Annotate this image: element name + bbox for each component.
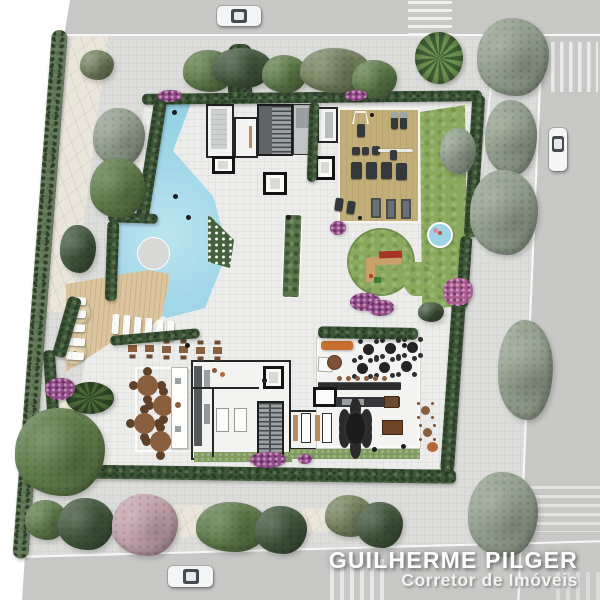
small-rooms [234, 117, 258, 158]
exercise-machine [381, 162, 392, 179]
exercise-machine [351, 162, 362, 179]
realtor-title: Corretor de Imóveis [329, 572, 578, 590]
wc-stall [322, 413, 332, 443]
plaza-light [185, 343, 190, 348]
car-roof [554, 139, 562, 149]
site-plan-rendering: GUILHERME PILGER Corretor de Imóveis [0, 0, 600, 600]
plaza-light [286, 215, 291, 220]
playground-toy [369, 274, 373, 278]
realtor-name: GUILHERME PILGER [329, 549, 578, 572]
watermark: GUILHERME PILGER Corretor de Imóveis [329, 549, 578, 590]
tree [58, 498, 114, 550]
central-planter [282, 214, 303, 299]
bar-table [379, 362, 390, 373]
plaza-light [402, 343, 407, 348]
tree [90, 158, 145, 218]
bar-stools [337, 376, 342, 381]
terrace-table [423, 428, 432, 437]
elevator [212, 156, 235, 174]
elevator [263, 366, 284, 389]
restaurant-table [137, 375, 158, 396]
kitchen-appliance [204, 370, 210, 388]
exercise-machine [396, 163, 407, 180]
kiddie-pool [427, 222, 453, 248]
gym-lounger [371, 198, 381, 218]
gym-lounger [401, 199, 411, 219]
tree [357, 502, 403, 548]
door [249, 126, 252, 148]
playground-block [374, 277, 381, 283]
plaza-light [186, 215, 191, 220]
exercise-machine [366, 162, 377, 179]
lounge-sofa [321, 341, 353, 350]
car-roof [186, 572, 196, 581]
sideboard [382, 420, 403, 435]
wc-stall [301, 413, 311, 443]
car [217, 6, 261, 26]
kitchen-appliance [356, 399, 364, 405]
car [168, 566, 213, 587]
buffet-item [175, 402, 181, 408]
kitchen-appliance [342, 399, 352, 405]
tree [470, 170, 538, 255]
flowering-tree [112, 494, 178, 556]
shrub-orange [427, 442, 438, 452]
treadmill [391, 112, 398, 129]
wc-stall [315, 415, 320, 441]
poolside-table [145, 345, 154, 352]
wc-stall [293, 415, 298, 441]
lobby-table [211, 109, 227, 149]
servery-item [220, 372, 225, 377]
plaza-light [372, 447, 377, 452]
stair-rail [269, 403, 271, 456]
car-roof [234, 12, 244, 20]
tree [477, 18, 549, 96]
wall-line [191, 387, 259, 389]
wall-line [212, 387, 214, 457]
poolside-table [213, 347, 222, 354]
restaurant-table [150, 431, 171, 452]
lounge-coffee-table [327, 355, 342, 370]
palm-tree [415, 32, 463, 84]
gym-anteroom-table [325, 112, 333, 138]
bench-press [390, 150, 397, 160]
tree [498, 320, 553, 420]
bar-table [363, 344, 374, 355]
shrub [418, 302, 444, 322]
bar-table [385, 343, 396, 354]
terrace-table [421, 406, 430, 415]
tree [15, 408, 105, 496]
kitchen-cabinet [384, 396, 399, 408]
gym-lounger [386, 199, 396, 219]
bar-table [357, 363, 368, 374]
elevator-freestanding [263, 172, 287, 195]
stair-landing [259, 106, 272, 154]
plaza-light [172, 110, 177, 115]
car [549, 128, 567, 171]
tree [468, 472, 538, 557]
playground-slide [379, 251, 402, 259]
lawn-connector [404, 262, 432, 296]
tree [60, 225, 96, 273]
crosswalk-top [408, 1, 452, 34]
dining-table-oval [344, 411, 367, 446]
kitchen-counter-strip [194, 366, 202, 446]
hedge-bar-top [318, 326, 418, 340]
poolside-table [196, 347, 205, 354]
plaza-light [401, 444, 406, 449]
tree [485, 100, 537, 175]
treadmill [400, 112, 407, 129]
bar-table [401, 361, 412, 372]
sun-lounger [111, 314, 119, 334]
locker-stall [234, 408, 247, 432]
sun-lounger [66, 352, 84, 361]
pool-toy [438, 231, 442, 235]
cold-room [313, 387, 337, 407]
dumbbell-rack [362, 147, 369, 155]
crosswalk-right-upper [551, 42, 598, 92]
tree [440, 128, 476, 174]
locker-stall [216, 408, 229, 432]
poolside-table [128, 345, 137, 352]
elevator [315, 156, 335, 180]
pool-island [137, 237, 170, 270]
floor-drain [358, 216, 362, 220]
buffet-item [175, 426, 181, 432]
floor-drain [370, 113, 374, 117]
plaza-light [173, 194, 178, 199]
restaurant-table [134, 413, 155, 434]
tree [255, 506, 307, 554]
poolside-table [162, 346, 171, 353]
buffet-item [175, 378, 181, 384]
gym-bench [357, 124, 365, 137]
sun-lounger [122, 315, 130, 335]
servery-item [212, 368, 217, 373]
bar-table [407, 342, 418, 353]
plaza-light [262, 378, 267, 383]
dumbbell-rack [352, 147, 360, 155]
kitchen-appliance [204, 404, 210, 424]
tree [80, 50, 114, 80]
